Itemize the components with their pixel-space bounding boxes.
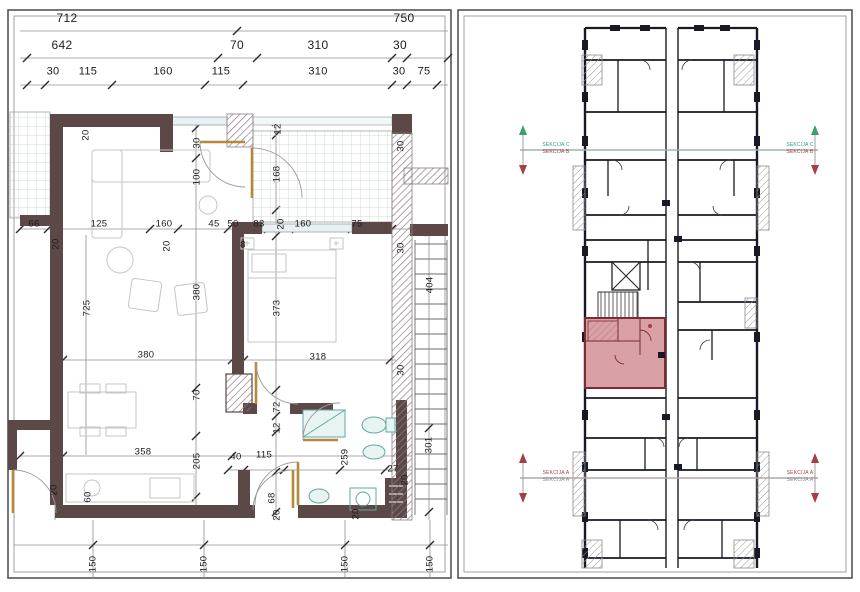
dimension-lines — [14, 31, 448, 578]
bath-fixtures — [303, 410, 395, 510]
section-line-upper — [519, 125, 819, 175]
elevator-icon — [612, 262, 640, 290]
plan-drawing — [0, 0, 860, 592]
right-panel-frame — [458, 10, 852, 578]
section-line-lower — [519, 453, 819, 503]
highlighted-unit[interactable] — [585, 318, 665, 388]
external-stairs — [415, 240, 447, 515]
left-panel-frame — [8, 10, 451, 578]
floor-plan-page: 7127506427031030301151601153103075201230… — [0, 0, 860, 592]
balcony-tiles — [10, 112, 392, 222]
